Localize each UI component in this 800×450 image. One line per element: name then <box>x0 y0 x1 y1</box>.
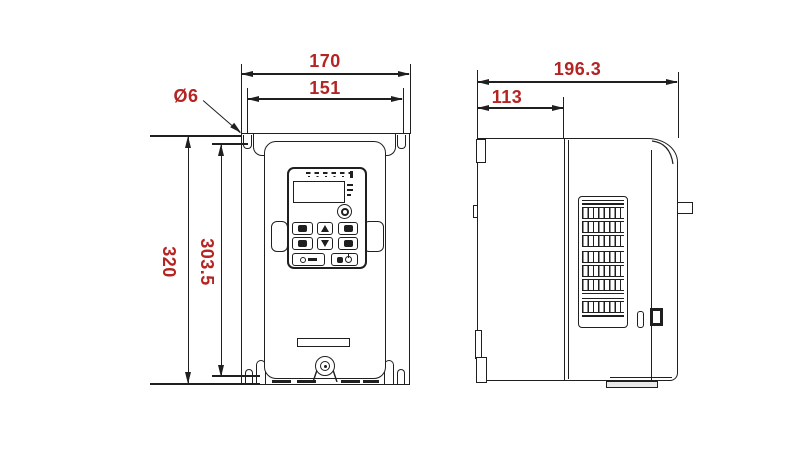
escape-icon <box>298 240 307 247</box>
status-led-ticks <box>308 176 348 177</box>
cable-slot <box>297 338 350 347</box>
mounting-slot-top-left <box>243 135 252 149</box>
run-bar-icon <box>308 258 317 261</box>
arrowhead-up <box>218 144 224 156</box>
arrowhead-down <box>185 372 191 384</box>
enter-button <box>338 237 358 250</box>
flange-notch <box>473 205 478 218</box>
dim-line-overall-height <box>188 137 189 383</box>
vent-slat-row <box>582 265 624 277</box>
status-led-labels <box>306 172 350 174</box>
section-divider-line <box>568 140 569 379</box>
up-arrow-button <box>317 222 333 235</box>
foot-mark <box>341 380 360 383</box>
up-arrow-icon <box>321 225 329 232</box>
extension-line <box>563 97 564 138</box>
arrowhead-right <box>552 105 564 111</box>
menu-icon <box>298 225 307 232</box>
run-icon <box>300 257 306 263</box>
potentiometer-knob-inner <box>341 208 349 216</box>
arrowhead-right <box>398 71 410 77</box>
extension-line <box>150 135 241 136</box>
down-arrow-icon <box>321 240 329 247</box>
arrowhead-left <box>477 79 489 85</box>
vent-slat-row <box>582 301 624 313</box>
seven-segment-display <box>293 181 345 203</box>
side-front-section <box>477 138 565 381</box>
back-cover-inner-line <box>651 150 652 380</box>
arrowhead-up <box>185 136 191 148</box>
grille-blank-bar <box>582 293 624 299</box>
rear-tab <box>677 202 693 214</box>
drawing-canvas: 170 151 Ø6 320 303.5 <box>0 0 800 450</box>
vent-slat-row <box>582 221 624 233</box>
heatsink-vent-grille <box>578 196 628 328</box>
vent-slat-row <box>582 235 624 247</box>
vent-slat-row <box>582 251 624 263</box>
arrowhead-down <box>218 365 224 377</box>
status-led-end-mark <box>350 171 353 178</box>
dim-label-hole-diameter: Ø6 <box>168 86 204 106</box>
stop-reset-button <box>331 253 358 266</box>
power-icon <box>345 256 352 263</box>
menu-button <box>292 222 313 235</box>
dim-line-overall-width <box>242 73 409 74</box>
run-button <box>292 253 325 266</box>
grille-bar <box>582 200 624 201</box>
mounting-tab-top <box>476 139 486 163</box>
arrowhead-left <box>247 96 259 102</box>
mounting-slot-bottom-right-hook <box>397 369 405 384</box>
mounting-slot-top-right <box>397 135 406 149</box>
shift-button <box>338 222 358 235</box>
mounting-foot <box>476 357 487 383</box>
bottom-foot-step <box>606 381 658 388</box>
back-bottom-inner-line <box>610 377 672 378</box>
foot-mark <box>272 380 291 383</box>
dim-label-overall-height: 320 <box>159 232 179 292</box>
dim-line-hole-spacing-height <box>221 145 222 376</box>
grille-bar <box>582 203 624 204</box>
escape-button <box>292 237 313 250</box>
back-cover-corner-curve <box>644 139 680 167</box>
dim-line-overall-depth <box>478 81 677 82</box>
dim-label-hole-spacing-width: 151 <box>295 78 355 98</box>
arrowhead-left <box>241 71 253 77</box>
extension-line <box>150 383 260 384</box>
keypad-ear-left <box>271 221 288 252</box>
dim-line-front-depth <box>478 107 563 108</box>
grille-bar <box>582 315 624 316</box>
display-unit-label-marks <box>347 184 353 196</box>
dim-label-hole-spacing-height: 303.5 <box>197 227 217 297</box>
din-clip-latch <box>650 308 663 326</box>
dim-line-hole-spacing-width <box>248 98 402 99</box>
stop-icon <box>337 257 343 263</box>
dim-label-front-depth: 113 <box>483 87 531 107</box>
vent-slat-row <box>582 207 624 219</box>
mounting-tab-bottom <box>475 330 482 359</box>
shift-icon <box>344 225 353 232</box>
enter-icon <box>344 240 353 247</box>
foot-mark <box>363 380 379 383</box>
vent-slat-row <box>582 279 624 291</box>
leader-line-hole-diameter <box>203 100 241 133</box>
arrowhead-right <box>666 79 678 85</box>
dim-label-overall-depth: 196.3 <box>545 59 610 79</box>
screw-center-dot <box>324 365 327 368</box>
arrowhead-right <box>391 96 403 102</box>
down-arrow-button <box>317 237 333 250</box>
dim-label-overall-width: 170 <box>295 51 355 71</box>
side-port-slot <box>637 311 644 328</box>
